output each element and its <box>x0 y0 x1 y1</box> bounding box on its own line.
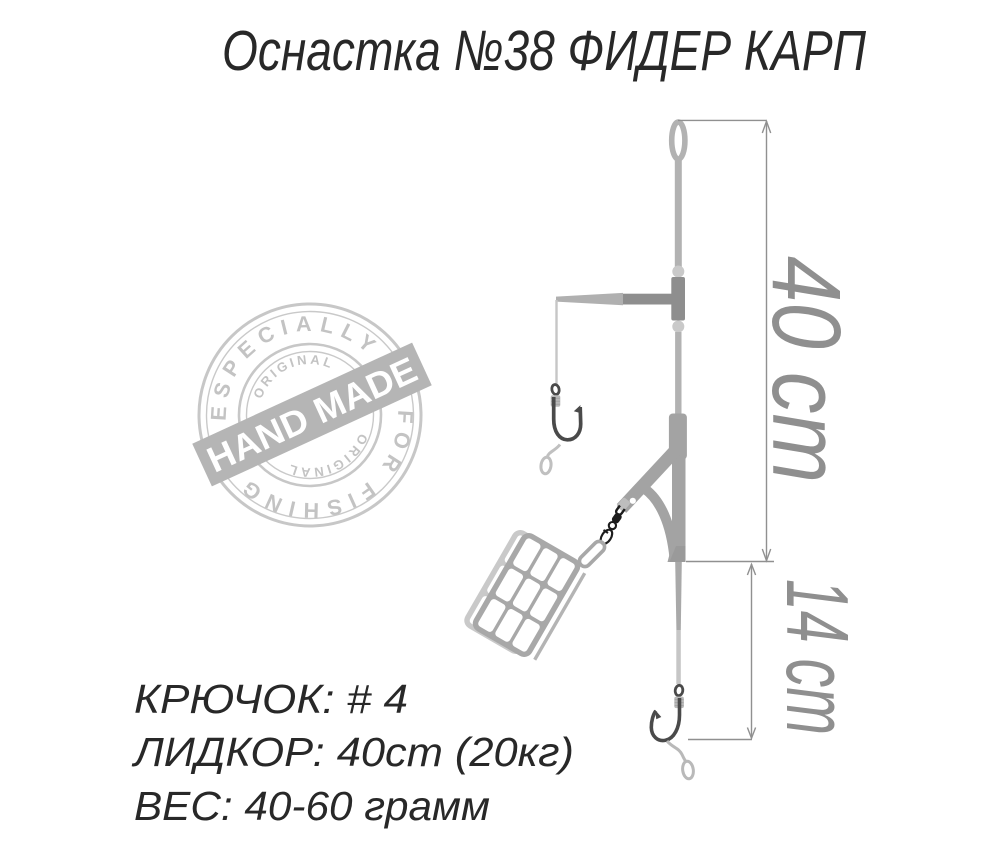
svg-text:14 cm: 14 cm <box>768 579 867 735</box>
svg-text:КРЮЧОК: # 4: КРЮЧОК: # 4 <box>134 676 408 722</box>
svg-text:ЛИДКОР: 40cm (20кг): ЛИДКОР: 40cm (20кг) <box>131 729 574 775</box>
svg-text:Оснастка №38 ФИДЕР КАРП: Оснастка №38 ФИДЕР КАРП <box>222 19 867 83</box>
svg-text:ВЕС: 40-60 грамм: ВЕС: 40-60 грамм <box>134 783 490 829</box>
svg-text:40 cm: 40 cm <box>752 256 861 483</box>
